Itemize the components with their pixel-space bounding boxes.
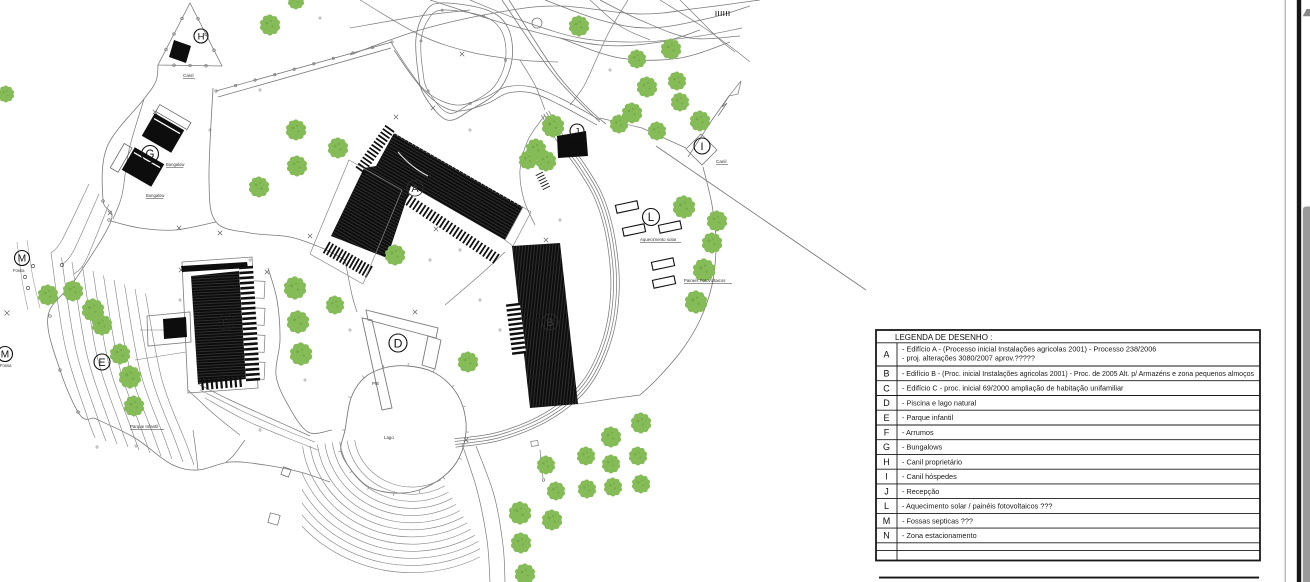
svg-text:- Fossas septicas ???: - Fossas septicas ??? (902, 516, 973, 525)
svg-text:J: J (884, 486, 889, 496)
svg-text:- Canil proprietário: - Canil proprietário (902, 457, 962, 466)
svg-text:F: F (884, 428, 890, 438)
svg-text:- Parque infantil: - Parque infantil (902, 413, 953, 422)
svg-text:H: H (198, 31, 205, 42)
svg-text:M: M (18, 254, 26, 265)
svg-text:B: B (546, 317, 553, 329)
svg-text:Fossa: Fossa (0, 363, 12, 368)
svg-text:Lago: Lago (384, 435, 394, 440)
svg-text:Canil: Canil (183, 73, 193, 78)
svg-text:- Piscina e lago natural: - Piscina e lago natural (902, 399, 977, 408)
svg-text:Fossa: Fossa (13, 268, 25, 273)
svg-text:Aquecimento solar: Aquecimento solar (640, 237, 677, 242)
svg-text:Parque Infantil: Parque Infantil (130, 424, 158, 429)
svg-text:A: A (411, 183, 419, 195)
svg-text:H: H (883, 457, 890, 467)
svg-text:D: D (883, 398, 890, 408)
svg-text:- Recepção: - Recepção (902, 487, 939, 496)
svg-text:M: M (1, 350, 9, 361)
svg-text:- Bungalows: - Bungalows (902, 443, 943, 452)
svg-text:E: E (98, 357, 105, 369)
svg-text:- proj. alterações 3080/2007: - proj. alterações 3080/2007 aprov.????? (902, 354, 1035, 363)
svg-text:- Zona estacionamento: - Zona estacionamento (902, 531, 977, 540)
svg-text:Bungalow: Bungalow (146, 193, 165, 198)
svg-text:M: M (883, 516, 891, 526)
svg-text:L: L (648, 212, 655, 224)
svg-text:C: C (222, 317, 230, 329)
svg-text:J: J (575, 126, 580, 137)
svg-text:- Canil hóspedes: - Canil hóspedes (902, 472, 957, 481)
svg-text:A: A (883, 350, 889, 360)
svg-text:- Aquecimento solar / painéis: - Aquecimento solar / painéis fotovoltai… (902, 502, 1052, 511)
svg-text:PIS: PIS (372, 381, 379, 386)
svg-text:- Arrumos: - Arrumos (902, 428, 934, 437)
svg-text:Paineis Fotovoltaicos: Paineis Fotovoltaicos (684, 278, 726, 283)
svg-text:G: G (146, 149, 155, 161)
svg-text:- Edifício B - (Proc. inicial: - Edifício B - (Proc. inicial Instalaçõe… (902, 369, 1254, 378)
svg-text:G: G (883, 442, 890, 452)
svg-text:- Edifício C - proc. inicial 6: - Edifício C - proc. inicial 69/2000 amp… (902, 384, 1124, 393)
svg-text:B: B (883, 369, 889, 379)
svg-text:Canil: Canil (716, 159, 726, 164)
svg-text:I: I (885, 472, 888, 482)
svg-text:L: L (884, 501, 889, 511)
svg-text:Bungalow: Bungalow (166, 162, 185, 167)
svg-text:D: D (394, 336, 403, 350)
svg-text:I: I (701, 141, 704, 153)
svg-text:N: N (883, 531, 890, 541)
svg-text:LEGENDA DE DESENHO :: LEGENDA DE DESENHO : (895, 333, 992, 342)
svg-text:- Edifício A - (Processo inici: - Edifício A - (Processo inicial Instala… (902, 345, 1156, 354)
svg-text:C: C (883, 383, 890, 393)
svg-text:E: E (883, 413, 889, 423)
